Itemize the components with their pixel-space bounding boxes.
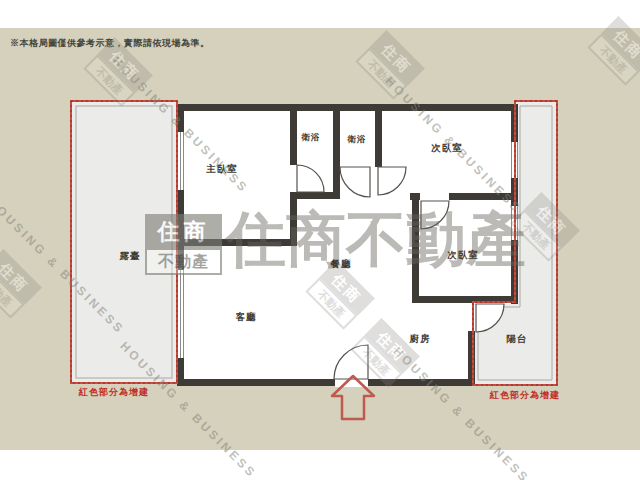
addition-note-left: 紅色部分為增建 [79, 386, 149, 399]
addition-note-right: 紅色部分為增建 [490, 389, 560, 402]
room-label-kitchen: 廚房 [410, 333, 431, 346]
window-left-1 [177, 132, 184, 190]
room-label-balcony: 陽台 [507, 333, 528, 346]
room-label-bedroom-mid-right: 次臥室 [447, 249, 479, 262]
floor-plan-image: ※本格局圖僅供參考示意，實際請依現場為準。 [0, 0, 640, 480]
room-label-master-bedroom: 主臥室 [206, 163, 238, 176]
window-left-2 [177, 270, 184, 358]
room-label-bedroom-top-right: 次臥室 [431, 142, 463, 155]
room-label-bath-2: 衛浴 [348, 134, 367, 146]
room-label-dining: 餐廳 [331, 258, 352, 271]
room-label-bath-1: 衛浴 [302, 132, 321, 144]
room-label-living: 客廳 [236, 311, 257, 324]
room-label-terrace: 露臺 [120, 250, 141, 263]
brand-wordmark-watermark: 住商不動產 [226, 210, 526, 270]
brand-logo-watermark-center: 住商 不動產 [145, 214, 222, 275]
